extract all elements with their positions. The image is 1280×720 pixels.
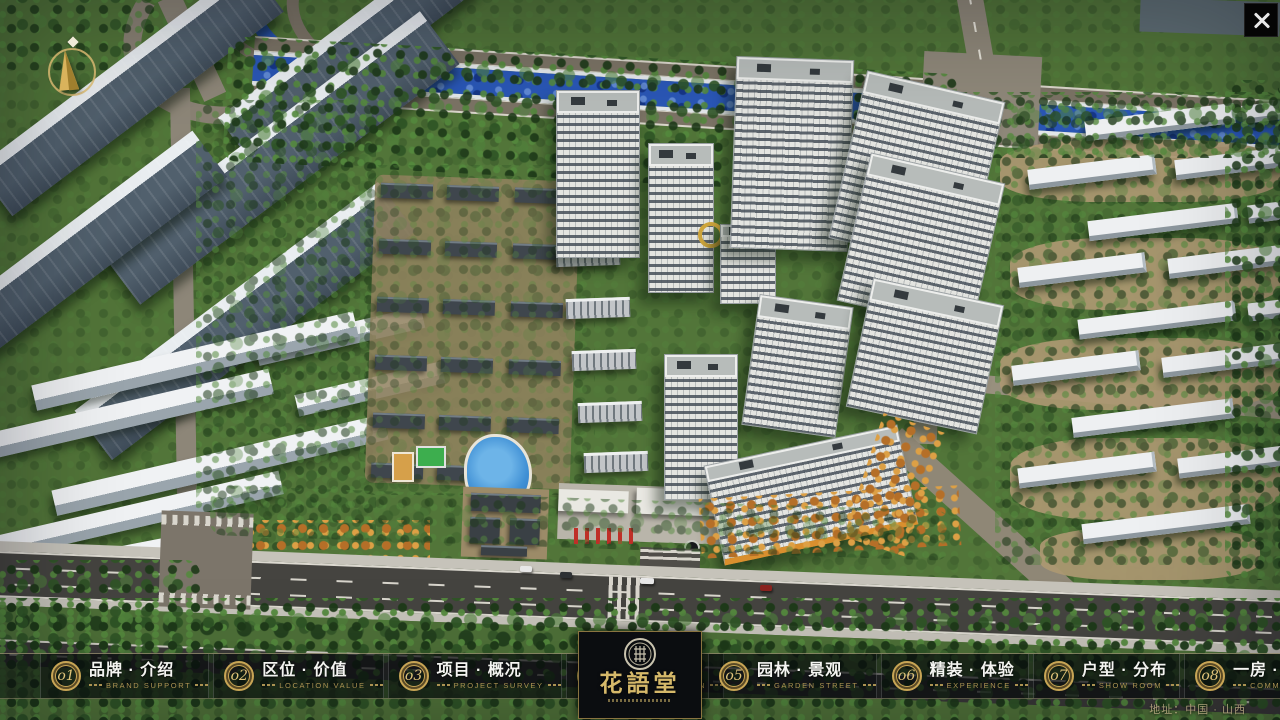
decorative-dash [930, 684, 943, 686]
tower-roof [649, 144, 713, 166]
temple-roof [481, 545, 527, 557]
vehicle [760, 585, 772, 591]
tower-building [846, 278, 1005, 435]
nav-item-label-en: LOCATION VALUE [279, 682, 365, 690]
tower-roof [557, 91, 639, 113]
nav-group-right: o5 园林 · 景观 GARDEN STREET o6 精装 · 体验 EXPE… [706, 654, 1242, 698]
nav-item-interior-experience[interactable]: o6 精装 · 体验 EXPERIENCE [881, 654, 1029, 698]
nav-item-one-room-one-view[interactable]: o8 一房 · 一景 COMMUNITY [1184, 654, 1280, 698]
decorative-dash [195, 684, 208, 686]
nav-medal-icon: o8 [1195, 661, 1225, 691]
nav-item-number: o2 [231, 669, 248, 683]
nav-item-label-en: EXPERIENCE [947, 682, 1011, 690]
green-roof-pavilion [416, 446, 446, 468]
nav-medal-icon: o2 [224, 661, 254, 691]
nav-item-location-value[interactable]: o2 区位 · 价值 LOCATION VALUE [213, 654, 383, 698]
pavilion [392, 452, 414, 482]
mid-rise-building [566, 297, 631, 319]
nav-medal-icon: o7 [1044, 661, 1074, 691]
nav-medal-icon: o3 [399, 661, 429, 691]
nav-item-label-zh: 精装 · 体验 [930, 663, 1028, 680]
decorative-dash [1082, 684, 1095, 686]
nav-medal-icon: o6 [892, 661, 922, 691]
vehicle [640, 578, 654, 584]
nav-item-number: o5 [725, 669, 742, 683]
address-text: 地址：中国 · 山西 [1149, 701, 1246, 717]
brand-logo-title: 花語堂 [600, 671, 681, 696]
vehicle [560, 572, 572, 578]
decorative-dash [89, 684, 102, 686]
tower-roof [737, 57, 854, 83]
mid-rise-building [572, 349, 637, 371]
tower-roof [665, 355, 737, 377]
nav-item-label-zh: 一房 · 一景 [1233, 663, 1280, 680]
nav-item-label-en: PROJECT SURVEY [454, 682, 544, 690]
nav-item-number: o8 [1201, 669, 1218, 683]
nav-item-label-en: COMMUNITY [1250, 682, 1280, 690]
decorative-dash [548, 684, 561, 686]
nav-item-label-zh: 户型 · 分布 [1082, 663, 1179, 680]
brand-logo-panel[interactable]: 花語堂 [578, 631, 702, 719]
nav-item-label-zh: 区位 · 价值 [262, 663, 382, 680]
nav-item-number: o6 [898, 669, 915, 683]
nav-medal-icon: o1 [51, 661, 81, 691]
nav-group-left: o1 品牌 · 介绍 BRAND SUPPORT o2 区位 · 价值 LOCA… [38, 654, 574, 698]
close-button[interactable] [1244, 3, 1278, 37]
mid-rise-building [584, 451, 649, 473]
brand-logo-subtitle-line [608, 699, 672, 702]
nav-item-label-en: BRAND SUPPORT [106, 682, 191, 690]
decorative-dash [437, 684, 450, 686]
decorative-dash [1166, 684, 1179, 686]
round-seal-icon [623, 637, 657, 671]
nav-item-project-survey[interactable]: o3 项目 · 概况 PROJECT SURVEY [388, 654, 562, 698]
nav-medal-icon: o5 [719, 661, 749, 691]
nav-item-label-zh: 品牌 · 介绍 [89, 663, 208, 680]
vehicle [520, 566, 532, 572]
mid-rise-building [578, 401, 643, 423]
compass-north-marker [67, 36, 78, 47]
decorative-dash [757, 684, 770, 686]
nav-item-label-en: GARDEN STREET [774, 682, 859, 690]
decorative-dash [262, 684, 275, 686]
nav-item-garden-landscape[interactable]: o5 园林 · 景观 GARDEN STREET [708, 654, 877, 698]
decorative-dash [863, 684, 876, 686]
tower-building [556, 90, 640, 258]
nav-item-label-zh: 项目 · 概况 [437, 663, 561, 680]
tower-building [648, 143, 714, 293]
decorative-dash [370, 684, 383, 686]
compass-icon [44, 36, 102, 104]
nav-item-label-en: SHOW ROOM [1099, 682, 1162, 690]
nav-item-number: o7 [1050, 669, 1067, 683]
nav-item-brand-intro[interactable]: o1 品牌 · 介绍 BRAND SUPPORT [40, 654, 209, 698]
scene-render[interactable] [0, 0, 1280, 720]
nav-item-floorplan-distribution[interactable]: o7 户型 · 分布 SHOW ROOM [1033, 654, 1180, 698]
decorative-dash [1233, 684, 1246, 686]
nav-item-label-zh: 园林 · 景观 [757, 663, 876, 680]
tower-building [741, 294, 853, 438]
decorative-dash [1015, 684, 1028, 686]
nav-item-number: o1 [57, 669, 74, 683]
presentation-window: o1 品牌 · 介绍 BRAND SUPPORT o2 区位 · 价值 LOCA… [0, 0, 1280, 720]
nav-item-number: o3 [405, 669, 422, 683]
